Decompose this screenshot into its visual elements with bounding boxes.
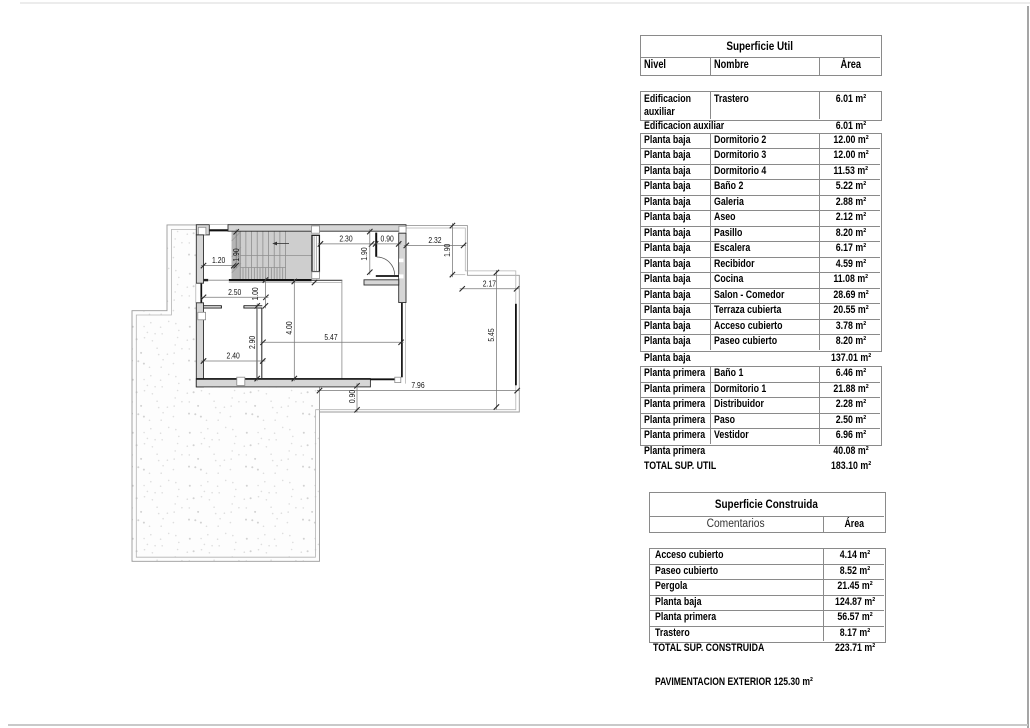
svg-text:4.00: 4.00 (285, 321, 294, 335)
svg-text:0.90: 0.90 (381, 235, 395, 244)
svg-text:5.47: 5.47 (324, 333, 338, 342)
svg-text:5.45: 5.45 (487, 328, 496, 342)
svg-text:1.90: 1.90 (360, 247, 369, 261)
svg-text:1.90: 1.90 (232, 248, 241, 262)
svg-text:1.20: 1.20 (212, 256, 226, 265)
svg-text:2.50: 2.50 (228, 288, 242, 297)
svg-text:7.96: 7.96 (411, 381, 425, 390)
svg-text:0.90: 0.90 (348, 389, 357, 403)
svg-text:1.90: 1.90 (443, 243, 452, 257)
svg-text:2.40: 2.40 (227, 352, 241, 361)
svg-text:2.90: 2.90 (248, 335, 257, 349)
svg-text:2.32: 2.32 (428, 236, 442, 245)
svg-text:1.00: 1.00 (251, 287, 260, 301)
svg-text:2.30: 2.30 (339, 235, 353, 244)
svg-text:2.17: 2.17 (483, 279, 497, 288)
